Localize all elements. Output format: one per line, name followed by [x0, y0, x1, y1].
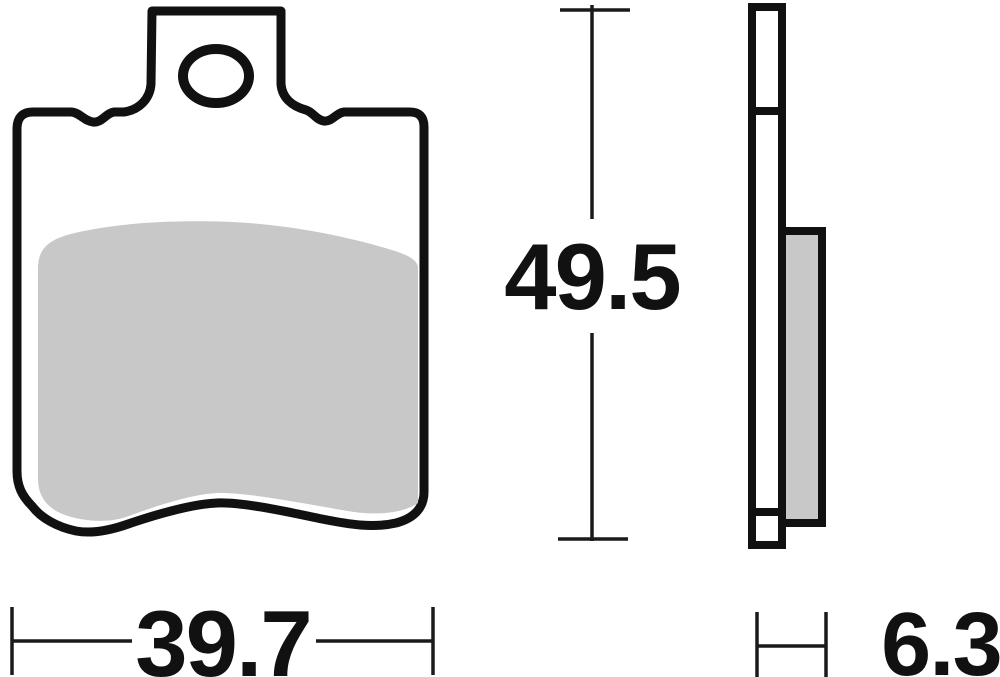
side-friction-material: [782, 231, 822, 523]
mounting-hole: [183, 49, 249, 103]
side-backplate: [752, 7, 782, 545]
side-view: [748, 7, 822, 545]
height-dimension-label: 49.5: [504, 230, 679, 324]
front-friction-material: [38, 221, 418, 521]
thickness-dimension: [757, 612, 826, 677]
drawing-canvas: 49.5 39.7 6.3: [0, 0, 1000, 677]
brake-pad-technical-drawing: [0, 0, 1000, 677]
front-view: [17, 11, 424, 532]
width-dimension-label: 39.7: [135, 597, 310, 677]
thickness-dimension-label: 6.3: [881, 600, 1000, 677]
